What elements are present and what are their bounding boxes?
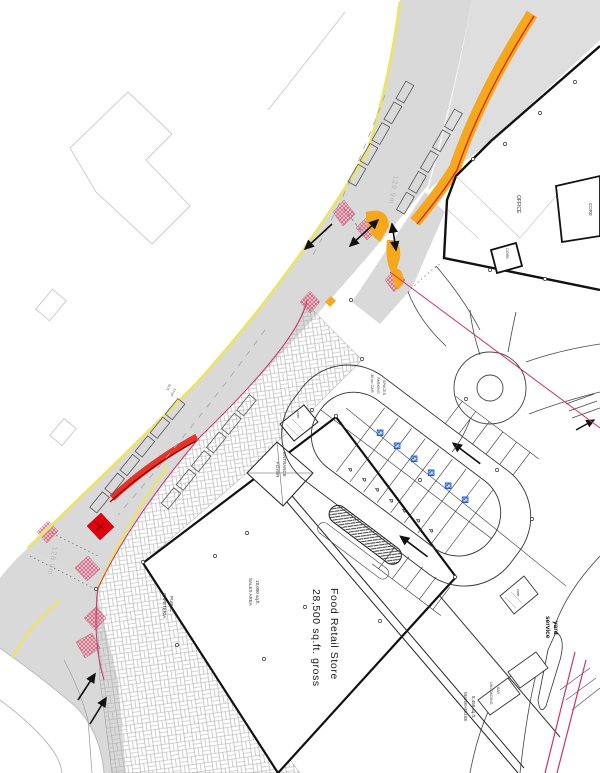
parking-p-symbol: P [360,478,366,482]
parking-note-3: SPACES [382,380,386,396]
parking-note-1: 30 no CAR [370,374,374,393]
sales-area-label-2: 18,000 sq.ft. [255,580,260,605]
site-plan-drawing: Food Retail Store 28,500 sq.ft. gross SA… [0,0,600,773]
office-label: OFFICE [515,195,521,214]
service-yard-label-1: service [544,616,551,639]
disabled-bay-icon: ♿ [393,442,401,450]
parking-p-symbol: P [346,468,352,472]
store-area-label: 28,500 sq.ft. gross [310,589,322,687]
parking-p-symbol: P [373,488,379,492]
core-yard-label: core [516,589,520,596]
core-entrance-label: core [296,411,300,418]
parking-p-symbol: P [427,529,433,533]
service-yard-label-2: yard [552,621,559,635]
warehouse-label-1: WAREHOUSE [463,692,468,721]
store-title-label: Food Retail Store [328,588,340,680]
unloading-label-1: UNLOADING [489,682,493,705]
parking-p-symbol: P [387,499,393,503]
site-plan-canvas: Food Retail Store 28,500 sq.ft. gross SA… [0,0,600,773]
disabled-bay-icon: ♿ [444,482,452,490]
bus-stop-label-1: BUS [165,384,171,392]
unloading-bay-2 [478,678,520,715]
disabled-bay-icon: ♿ [461,496,469,504]
cafeteria-label-1: PUBLIC [169,596,174,613]
warehouse-label-2: 8,450 sq.ft. [471,696,476,718]
parking-p-symbol: P [400,509,406,513]
parking-p-symbol: P [414,519,420,523]
roundabout [408,266,600,452]
core-b-label: CORE [588,203,593,216]
core-a-label: CORE [505,248,509,259]
disabled-bay-icon: ♿ [376,429,384,437]
parking-note-2: PARKING [376,377,380,394]
entrance-label-2: FOYER [275,462,280,478]
disabled-bay-icon: ♿ [410,455,418,463]
unloading-label-2: BAY [496,687,500,695]
sales-area-label-1: SALES AREA [248,578,253,606]
disabled-bay-icon: ♿ [427,469,435,477]
entrance-label-1: ENTRANCE [282,452,287,477]
cafeteria-label-2: CAFETERIA [162,593,167,618]
